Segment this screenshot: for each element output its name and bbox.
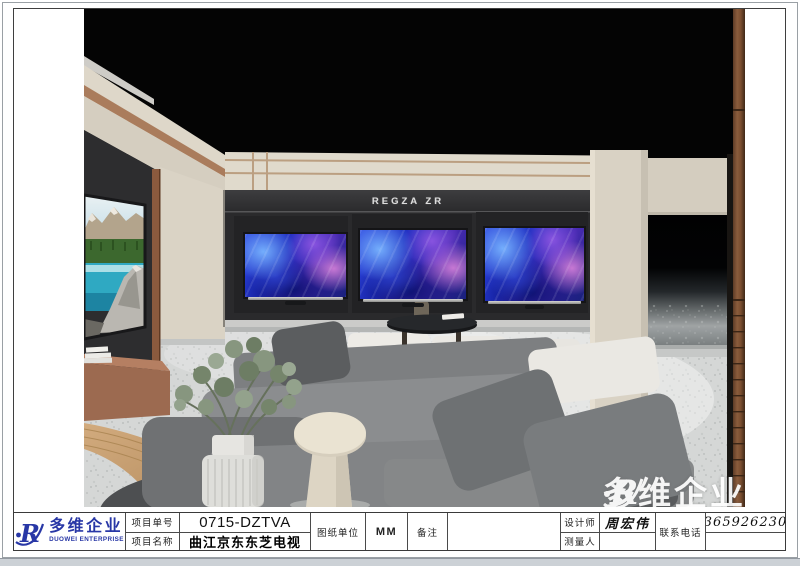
tv-screen-2 [358, 228, 468, 301]
svg-text:R: R [609, 473, 638, 507]
brand-watermark-mark: R [602, 467, 646, 507]
tv-screen-texture [485, 228, 584, 301]
phone-label: 联系电话 [655, 513, 705, 550]
company-name-en: DUOWEI ENTERPRISE [49, 537, 124, 543]
brand-watermark: R 多维企业 [602, 467, 745, 507]
project-name-label: 项目名称 [125, 532, 179, 551]
company-name-cn: 多维企业 [49, 519, 123, 535]
tv-screen-3 [483, 226, 586, 303]
unit-label: 图纸单位 [310, 513, 365, 550]
project-no-label: 项目单号 [125, 513, 179, 532]
unit-value: MM [365, 513, 407, 550]
remark-value [447, 513, 560, 550]
surveyor-value [599, 532, 655, 551]
phone-value: 13659262305 [705, 513, 785, 532]
designer-value: 周宏伟 [599, 513, 655, 532]
upper-wall-band [225, 152, 648, 190]
remark-label: 备注 [407, 513, 447, 550]
tv-screen-texture [360, 230, 466, 299]
project-name-value: 曲江京东东芝电视 [179, 532, 310, 551]
tv-screen-texture [245, 234, 346, 297]
wood-pole [733, 9, 745, 507]
left-end-wall [160, 167, 226, 345]
company-logo: R 多维企业 DUOWEI ENTERPRISE [14, 513, 125, 550]
rendering-image: REGZA ZR R 多维企业 [84, 9, 745, 507]
company-logo-mark: R [15, 516, 45, 548]
project-no-value: 0715-DZTVA [179, 513, 310, 532]
designer-label: 设计师 [560, 513, 599, 532]
surveyor-label: 测量人 [560, 532, 599, 551]
drawing-sheet: REGZA ZR R 多维企业 R 多维企业 DUOWEI ENTERPRIS [0, 0, 800, 566]
phone-value-empty [705, 532, 785, 551]
title-block: R 多维企业 DUOWEI ENTERPRISE 项目单号 0715-DZTVA… [13, 512, 786, 551]
regza-sign: REGZA ZR [348, 196, 468, 207]
page-edge [0, 558, 800, 566]
tv-screen-1 [243, 232, 348, 299]
